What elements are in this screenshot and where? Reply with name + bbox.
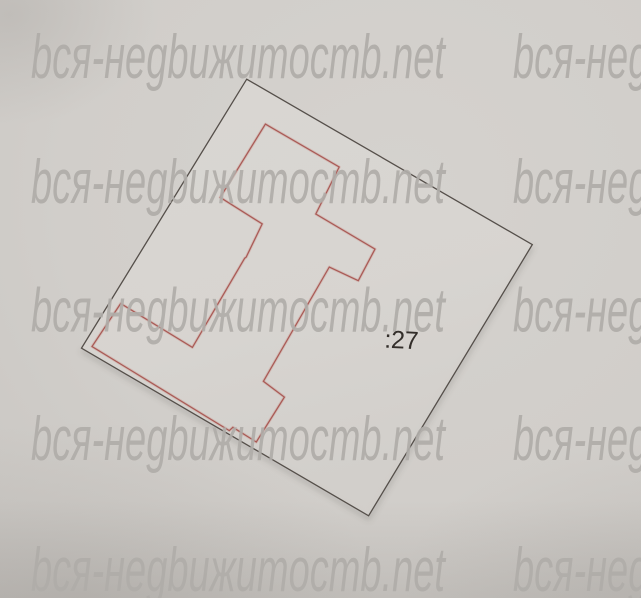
svg-text:bся-нegbuжumocmb.net: bся-нegbuжumocmb.net <box>31 405 447 474</box>
svg-text:bся-нegbuжumocmb.net: bся-нegbuжumocmb.net <box>513 536 641 598</box>
svg-text:bся-нegbuжumocmb.net: bся-нegbuжumocmb.net <box>513 23 641 92</box>
svg-text::27: :27 <box>384 326 419 356</box>
svg-text:bся-нegbuжumocmb.net: bся-нegbuжumocmb.net <box>31 536 447 598</box>
svg-text:bся-нegbuжumocmb.net: bся-нegbuжumocmb.net <box>513 148 641 217</box>
svg-text:bся-нegbuжumocmb.net: bся-нegbuжumocmb.net <box>513 277 641 346</box>
svg-text:bся-нegbuжumocmb.net: bся-нegbuжumocmb.net <box>31 148 447 217</box>
svg-text:bся-нegbuжumocmb.net: bся-нegbuжumocmb.net <box>31 23 447 92</box>
svg-text:bся-нegbuжumocmb.net: bся-нegbuжumocmb.net <box>513 405 641 474</box>
